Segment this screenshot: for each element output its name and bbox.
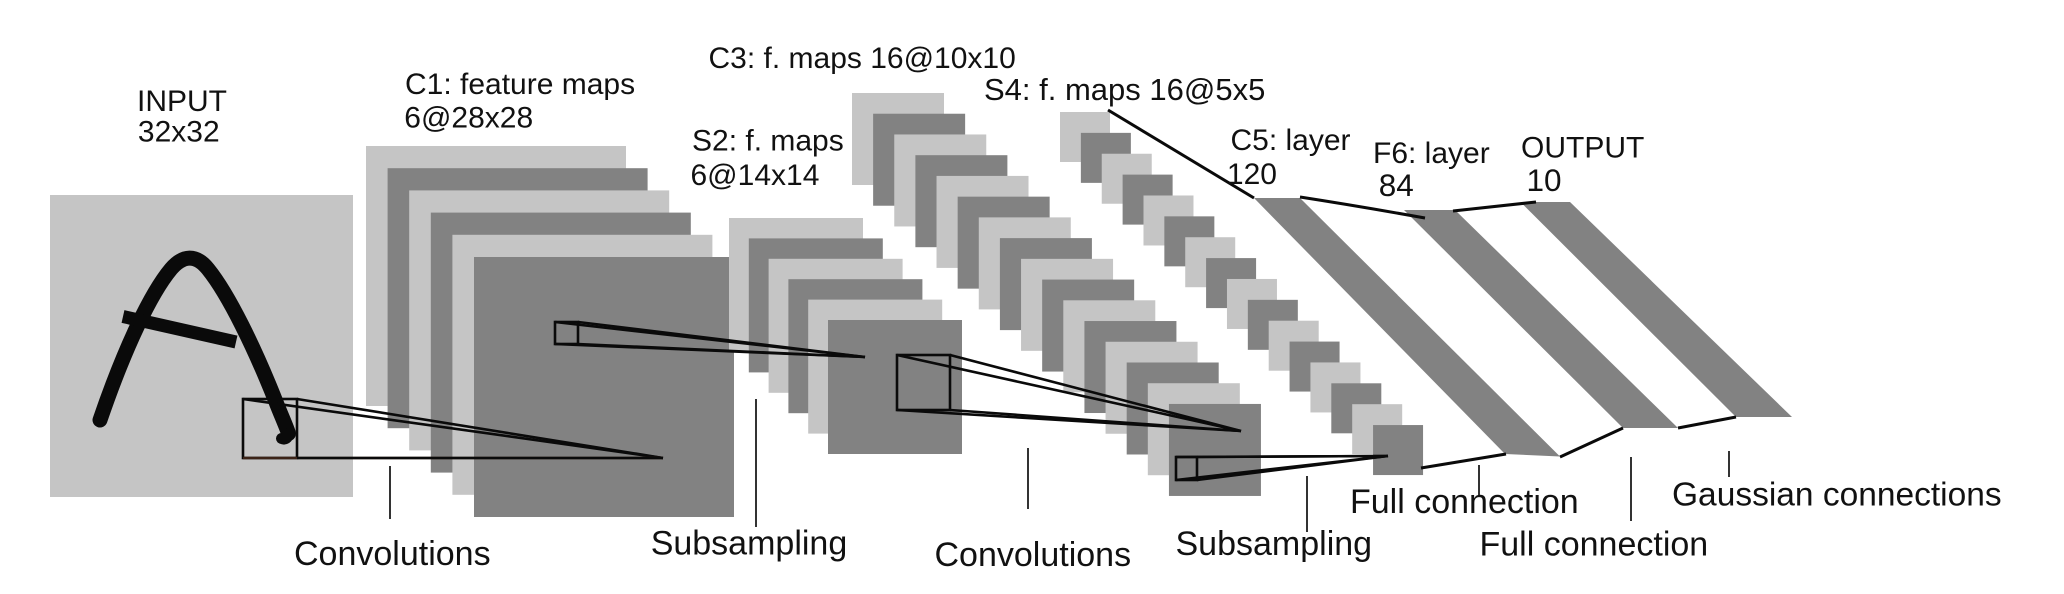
svg-text:Full connection: Full connection bbox=[1350, 483, 1579, 521]
svg-text:Gaussian connections: Gaussian connections bbox=[1672, 477, 2002, 514]
svg-text:Subsampling: Subsampling bbox=[651, 525, 848, 563]
svg-text:F6: layer: F6: layer bbox=[1373, 137, 1490, 170]
svg-text:C3: f. maps 16@10x10: C3: f. maps 16@10x10 bbox=[709, 42, 1016, 75]
svg-text:OUTPUT: OUTPUT bbox=[1521, 132, 1644, 165]
svg-text:120: 120 bbox=[1227, 158, 1277, 191]
svg-text:6@14x14: 6@14x14 bbox=[691, 159, 820, 192]
svg-text:Subsampling: Subsampling bbox=[1176, 525, 1373, 563]
svg-text:Full connection: Full connection bbox=[1480, 526, 1709, 564]
svg-text:6@28x28: 6@28x28 bbox=[404, 102, 533, 135]
svg-text:10: 10 bbox=[1527, 162, 1562, 198]
svg-text:32x32: 32x32 bbox=[138, 116, 220, 149]
svg-text:Convolutions: Convolutions bbox=[294, 535, 491, 573]
svg-text:C1: feature maps: C1: feature maps bbox=[405, 68, 635, 101]
svg-text:INPUT: INPUT bbox=[137, 85, 227, 118]
svg-text:84: 84 bbox=[1379, 167, 1414, 203]
svg-text:S2: f. maps: S2: f. maps bbox=[692, 125, 844, 158]
svg-text:S4: f. maps 16@5x5: S4: f. maps 16@5x5 bbox=[984, 72, 1265, 107]
svg-text:C5: layer: C5: layer bbox=[1231, 124, 1351, 157]
svg-text:Convolutions: Convolutions bbox=[935, 536, 1132, 574]
